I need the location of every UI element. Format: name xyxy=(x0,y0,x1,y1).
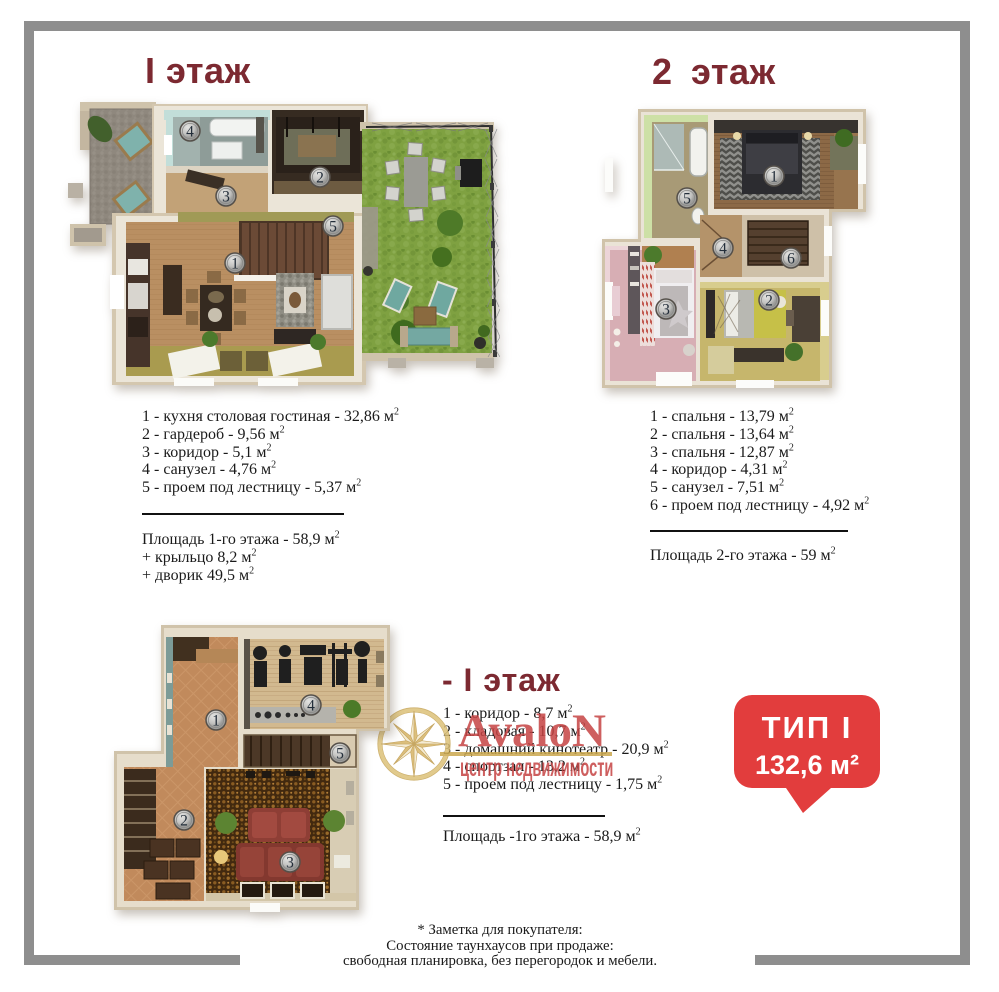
svg-text:2: 2 xyxy=(316,169,324,186)
svg-text:132,6 м²: 132,6 м² xyxy=(755,750,859,780)
svg-text:5: 5 xyxy=(336,745,344,762)
svg-text:ТИП I: ТИП I xyxy=(762,710,853,745)
svg-text:3: 3 xyxy=(662,301,670,318)
svg-text:2: 2 xyxy=(180,812,188,829)
svg-text:5: 5 xyxy=(683,190,691,207)
svg-text:4: 4 xyxy=(307,697,315,714)
svg-text:4: 4 xyxy=(719,240,727,257)
svg-text:1: 1 xyxy=(231,255,239,272)
svg-text:3: 3 xyxy=(222,188,230,205)
svg-text:3: 3 xyxy=(286,854,294,871)
svg-text:1: 1 xyxy=(770,168,778,185)
svg-text:2: 2 xyxy=(765,292,773,309)
svg-text:4: 4 xyxy=(186,123,194,140)
svg-text:6: 6 xyxy=(787,250,795,267)
svg-text:5: 5 xyxy=(329,218,337,235)
svg-text:1: 1 xyxy=(212,712,220,729)
